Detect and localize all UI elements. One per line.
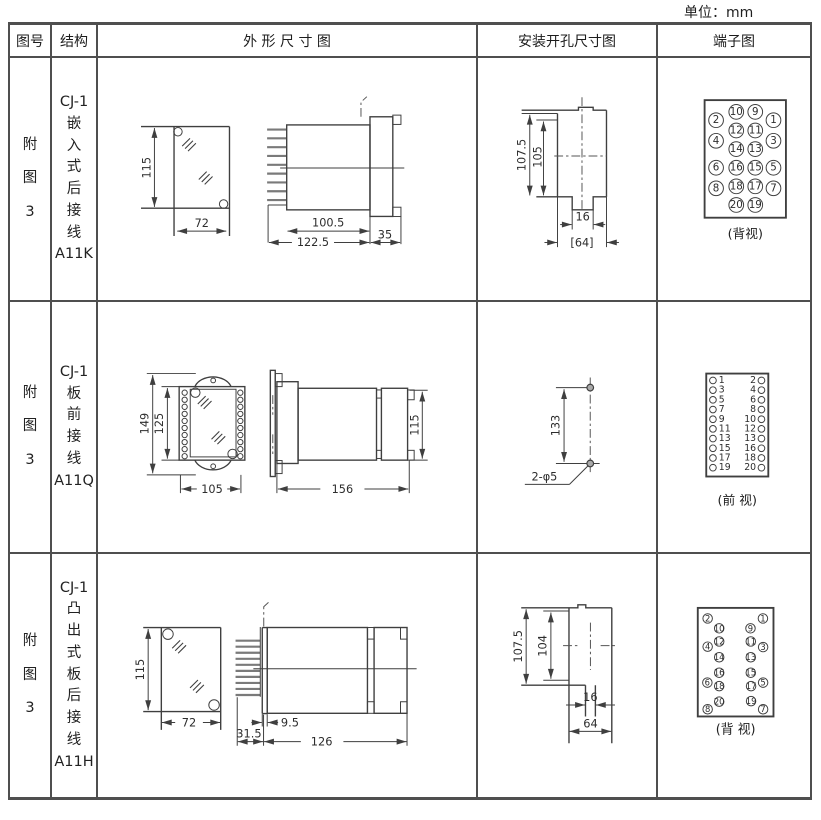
dim-total-length: 122.5 bbox=[297, 236, 329, 249]
terminal-number: 16 bbox=[730, 162, 743, 174]
terminal-number: 15 bbox=[749, 162, 762, 174]
header-outline: 外 形 尺 寸 图 bbox=[98, 25, 478, 58]
row2-terminal-cell: 1 3 5 7 9 11 13 15 17 19 2 4 6 8 10 12 1 bbox=[658, 302, 810, 554]
row2-terminal-diagram: 1 3 5 7 9 11 13 15 17 19 2 4 6 8 10 12 1 bbox=[658, 302, 810, 552]
terminal-view-caption: (背视) bbox=[728, 226, 763, 242]
spec-table: 图号 结构 外 形 尺 寸 图 安装开孔尺寸图 端子图 附 图 3 CJ-1 嵌… bbox=[8, 22, 812, 800]
row1-mounting-cell: 107.5 105 16 [64] bbox=[478, 58, 658, 302]
row2-code: A11Q bbox=[54, 471, 94, 493]
terminal-view-caption: (前 视) bbox=[718, 492, 757, 508]
dim-outer-height: 107.5 bbox=[511, 630, 525, 663]
header-structure: 结构 bbox=[52, 25, 98, 58]
terminal-number: 18 bbox=[714, 681, 725, 691]
terminal-number: 6 bbox=[713, 162, 720, 174]
terminal-number: 4 bbox=[705, 642, 710, 652]
terminal-number: 9 bbox=[748, 623, 753, 633]
terminal-number: 9 bbox=[752, 106, 759, 118]
row1-terminal-diagram: 10 12 14 16 18 20 9 11 13 15 17 19 2 4 6… bbox=[658, 58, 810, 300]
terminal-number: 1 bbox=[760, 613, 765, 623]
row3-structure-name: 凸 出 式 板 后 接 线 bbox=[67, 599, 82, 751]
row2-mounting-cell: 133 2-φ5 bbox=[478, 302, 658, 554]
row1-fig-no-text: 附 图 3 bbox=[23, 129, 38, 229]
terminal-number: 8 bbox=[705, 704, 710, 714]
row1-structure: CJ-1 嵌 入 式 后 接 线 A11K bbox=[52, 58, 98, 302]
terminal-number: 6 bbox=[705, 678, 710, 688]
row3-side-view: 9.5 31.5 126 bbox=[236, 601, 417, 749]
dim-front-width: 105 bbox=[201, 483, 223, 496]
terminal-strip-left bbox=[182, 390, 187, 459]
terminal-number: 12 bbox=[730, 125, 743, 137]
dim-front-width: 72 bbox=[182, 715, 196, 729]
terminal-number: 19 bbox=[719, 462, 731, 473]
unit-label: 单位：mm bbox=[684, 2, 753, 22]
dim-inner-height: 105 bbox=[532, 146, 545, 167]
row3-mounting-cell: 107.5 104 16 64 bbox=[478, 554, 658, 797]
row1-code: A11K bbox=[55, 244, 93, 266]
terminal-number: 11 bbox=[745, 636, 756, 646]
row2-front-view: 149 125 105 bbox=[138, 374, 245, 496]
terminal-view-caption: (背 视) bbox=[716, 723, 756, 738]
header-mounting-label: 安装开孔尺寸图 bbox=[518, 31, 616, 51]
terminal-number: 2 bbox=[705, 613, 710, 623]
dim-front-height: 115 bbox=[133, 659, 147, 681]
spec-sheet-page: 单位：mm 图号 结构 外 形 尺 寸 图 安装开孔尺寸图 端子图 附 图 3 … bbox=[0, 0, 821, 820]
row3-fig-no: 附 图 3 bbox=[10, 554, 52, 797]
dim-body-length: 126 bbox=[311, 735, 333, 749]
row1-outline-drawing: 115 72 100.5 122.5 bbox=[98, 58, 476, 300]
terminal-number: 15 bbox=[745, 668, 756, 678]
terminal-number: 20 bbox=[730, 199, 743, 211]
terminal-number: 14 bbox=[714, 652, 725, 662]
terminal-number: 19 bbox=[749, 199, 762, 211]
row3-outline-drawing: 115 72 bbox=[98, 554, 476, 797]
dim-flange-depth: 35 bbox=[378, 228, 392, 241]
header-structure-label: 结构 bbox=[60, 31, 88, 51]
header-mounting: 安装开孔尺寸图 bbox=[478, 25, 658, 58]
row1-outline-cell: 115 72 100.5 122.5 bbox=[98, 58, 478, 302]
dim-notch-width: 16 bbox=[576, 211, 590, 224]
header-fig-no-label: 图号 bbox=[16, 31, 44, 51]
row3-fig-no-text: 附 图 3 bbox=[23, 625, 38, 725]
dim-opening-width: [64] bbox=[570, 236, 593, 249]
terminal-number: 17 bbox=[749, 180, 762, 192]
terminal-number: 5 bbox=[770, 162, 777, 174]
row3-structure: CJ-1 凸 出 式 板 后 接 线 A11H bbox=[52, 554, 98, 797]
terminal-number: 11 bbox=[749, 125, 762, 137]
terminal-number: 19 bbox=[746, 696, 757, 706]
row3-mounting-drawing: 107.5 104 16 64 bbox=[478, 554, 656, 797]
row1-fig-no: 附 图 3 bbox=[10, 58, 52, 302]
row2-fig-no-text: 附 图 3 bbox=[23, 377, 38, 477]
terminal-strip-right bbox=[238, 390, 243, 459]
terminal-number: 12 bbox=[714, 636, 725, 646]
terminal-pins-front-view: 1 3 5 7 9 11 13 15 17 19 2 4 6 8 10 12 1 bbox=[710, 375, 765, 473]
row3-terminal-diagram: 2 1 10 9 12 11 4 3 14 13 16 15 6 5 18 17 bbox=[658, 554, 810, 797]
terminal-number: 13 bbox=[749, 143, 762, 155]
holes-label: 2-φ5 bbox=[532, 470, 558, 483]
row3-outline-cell: 115 72 bbox=[98, 554, 478, 797]
row1-mounting-drawing: 107.5 105 16 [64] bbox=[478, 58, 656, 300]
dim-plate-thickness: 9.5 bbox=[281, 715, 299, 729]
terminal-number: 3 bbox=[760, 642, 765, 652]
dim-front-width: 72 bbox=[195, 217, 209, 230]
row2-fig-no: 附 图 3 bbox=[10, 302, 52, 554]
dim-notch-width: 16 bbox=[583, 690, 597, 704]
dim-outer-height: 107.5 bbox=[515, 139, 528, 171]
terminal-number: 18 bbox=[730, 180, 743, 192]
dim-side-height: 115 bbox=[408, 414, 421, 436]
row2-structure-name: 板 前 接 线 bbox=[67, 384, 82, 471]
row1-terminal-cell: 10 12 14 16 18 20 9 11 13 15 17 19 2 4 6… bbox=[658, 58, 810, 302]
header-outline-label: 外 形 尺 寸 图 bbox=[243, 31, 331, 51]
terminal-number: 4 bbox=[713, 135, 720, 147]
row2-side-view: 156 115 bbox=[270, 370, 427, 496]
dim-hole-spacing: 133 bbox=[550, 415, 563, 437]
terminal-number: 16 bbox=[714, 668, 725, 678]
terminal-number: 10 bbox=[730, 106, 743, 118]
row2-mounting-drawing: 133 2-φ5 bbox=[478, 302, 656, 552]
row1-structure-name: 嵌 入 式 后 接 线 bbox=[67, 114, 82, 245]
header-terminal-label: 端子图 bbox=[713, 31, 755, 51]
terminal-number: 14 bbox=[730, 143, 743, 155]
terminal-pins-back-view: 10 12 14 16 18 20 9 11 13 15 17 19 2 4 6… bbox=[709, 105, 781, 213]
terminal-number: 7 bbox=[760, 704, 765, 714]
mounting-hole bbox=[587, 384, 594, 391]
dim-inner-height: 125 bbox=[153, 413, 166, 435]
row1-model: CJ-1 bbox=[60, 92, 88, 114]
header-fig-no: 图号 bbox=[10, 25, 52, 58]
dim-outer-height: 149 bbox=[138, 413, 151, 435]
row2-outline-cell: 149 125 105 bbox=[98, 302, 478, 554]
row3-terminal-cell: 2 1 10 9 12 11 4 3 14 13 16 15 6 5 18 17 bbox=[658, 554, 810, 797]
dim-pin-length: 31.5 bbox=[236, 726, 261, 740]
terminal-number: 8 bbox=[713, 182, 720, 194]
terminal-number: 3 bbox=[770, 135, 777, 147]
terminal-number: 20 bbox=[744, 462, 756, 473]
terminal-number: 2 bbox=[713, 114, 720, 126]
row2-model: CJ-1 bbox=[60, 362, 88, 384]
dim-body-length: 100.5 bbox=[312, 217, 344, 230]
dim-front-height: 115 bbox=[140, 157, 153, 178]
dim-opening-width: 64 bbox=[583, 717, 597, 731]
row3-model: CJ-1 bbox=[60, 578, 88, 600]
row1-front-view: 115 72 bbox=[140, 127, 229, 236]
dim-side-length: 156 bbox=[332, 483, 354, 496]
terminal-pins-back-view: 2 1 10 9 12 11 4 3 14 13 16 15 6 5 18 17 bbox=[703, 613, 768, 714]
terminal-number: 5 bbox=[760, 678, 765, 688]
row2-outline-drawing: 149 125 105 bbox=[98, 302, 476, 552]
terminal-number: 1 bbox=[770, 114, 777, 126]
dim-inner-height: 104 bbox=[536, 635, 550, 657]
terminal-number: 7 bbox=[770, 182, 777, 194]
terminal-number: 20 bbox=[714, 697, 725, 707]
row3-front-view: 115 72 bbox=[133, 628, 221, 730]
terminal-number: 10 bbox=[714, 623, 725, 633]
row2-structure: CJ-1 板 前 接 线 A11Q bbox=[52, 302, 98, 554]
row3-code: A11H bbox=[54, 752, 93, 774]
terminal-number: 13 bbox=[745, 652, 756, 662]
header-terminal: 端子图 bbox=[658, 25, 810, 58]
row1-side-view: 100.5 122.5 35 bbox=[267, 97, 404, 249]
terminal-number: 17 bbox=[746, 681, 757, 691]
